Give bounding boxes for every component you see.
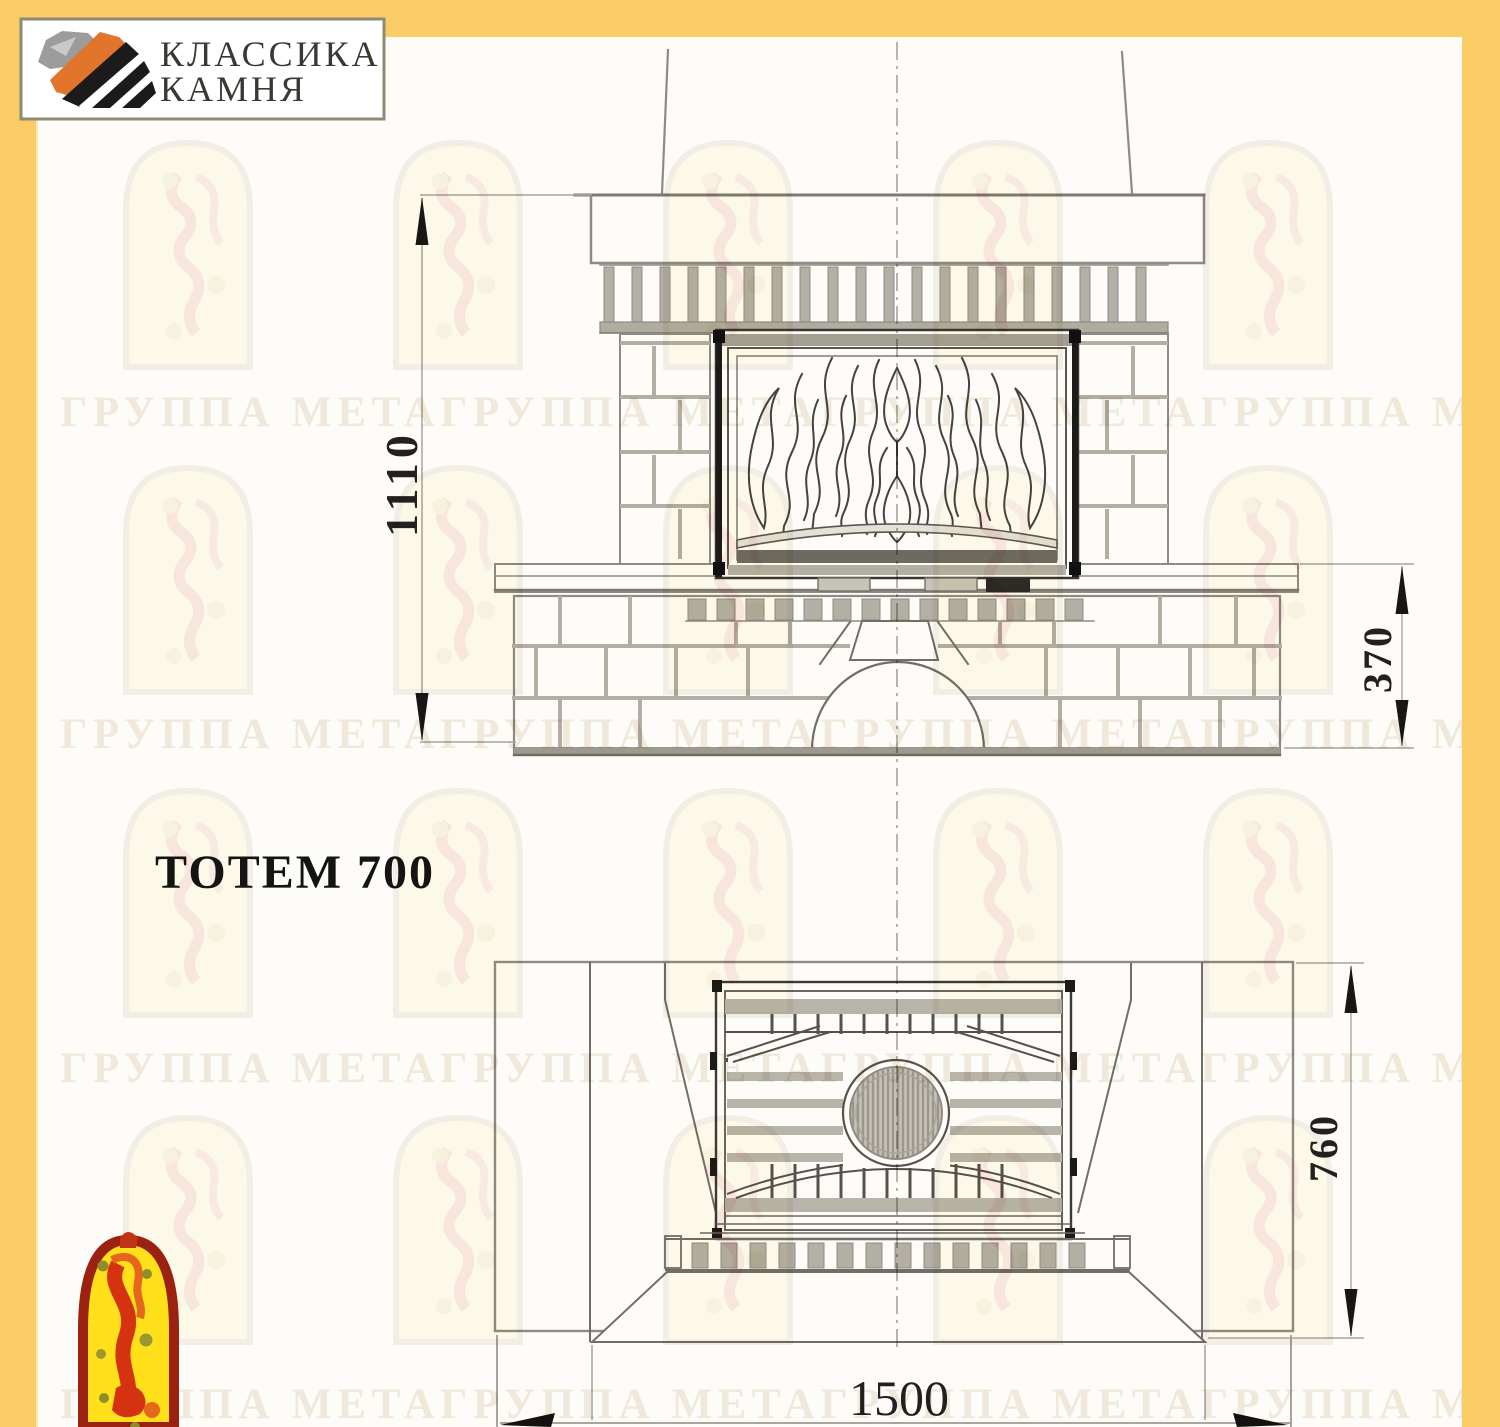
svg-text:КАМНЯ: КАМНЯ [160,69,307,109]
svg-text:ГРУППА МЕТАГРУППА МЕТАГРУППА М: ГРУППА МЕТАГРУППА МЕТАГРУППА МЕТАГРУППА … [60,389,1500,436]
svg-text:ГРУППА МЕТАГРУППА МЕТАГРУППА М: ГРУППА МЕТАГРУППА МЕТАГРУППА МЕТАГРУППА … [60,1045,1500,1092]
svg-text:КЛАССИКА: КЛАССИКА [160,34,381,74]
svg-text:ГРУППА МЕТАГРУППА МЕТАГРУППА М: ГРУППА МЕТАГРУППА МЕТАГРУППА МЕТАГРУППА … [60,711,1500,758]
svg-text:370: 370 [1355,624,1400,693]
svg-text:ГРУППА МЕТАГРУППА МЕТАГРУППА М: ГРУППА МЕТАГРУППА МЕТАГРУППА МЕТАГРУППА … [60,1381,1500,1427]
